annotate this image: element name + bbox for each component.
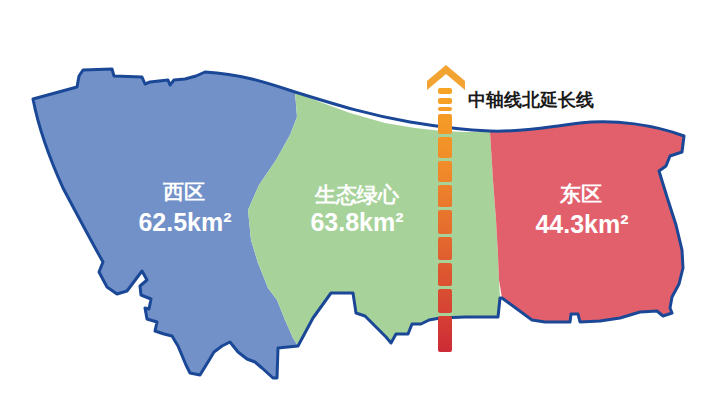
axis-dash [438, 88, 452, 94]
axis-dash [438, 289, 452, 313]
region-east-name: 东区 [559, 182, 602, 205]
axis-dash [438, 316, 452, 352]
region-green-heart-name: 生态绿心 [314, 183, 400, 206]
axis-dash [438, 107, 452, 111]
axis-dash [438, 98, 452, 104]
region-green-heart-area: 63.8km² [310, 208, 403, 236]
axis-dash [438, 210, 452, 234]
region-east-area: 44.3km² [535, 210, 628, 238]
region-west-area: 62.5km² [138, 208, 231, 236]
axis-dash [438, 263, 452, 286]
axis-dash [438, 114, 452, 134]
region-west-name: 西区 [162, 180, 205, 203]
planning-map-infographic: 西区 62.5km² 生态绿心 63.8km² 东区 44.3km² 中轴线北延… [0, 0, 718, 407]
axis-dash [438, 137, 452, 158]
central-axis-label: 中轴线北延长线 [468, 90, 594, 110]
axis-dash [438, 161, 452, 182]
north-arrow-icon [427, 65, 465, 90]
axis-dash [438, 237, 452, 260]
district-map-svg: 西区 62.5km² 生态绿心 63.8km² 东区 44.3km² 中轴线北延… [0, 0, 718, 407]
axis-dash [438, 185, 452, 207]
